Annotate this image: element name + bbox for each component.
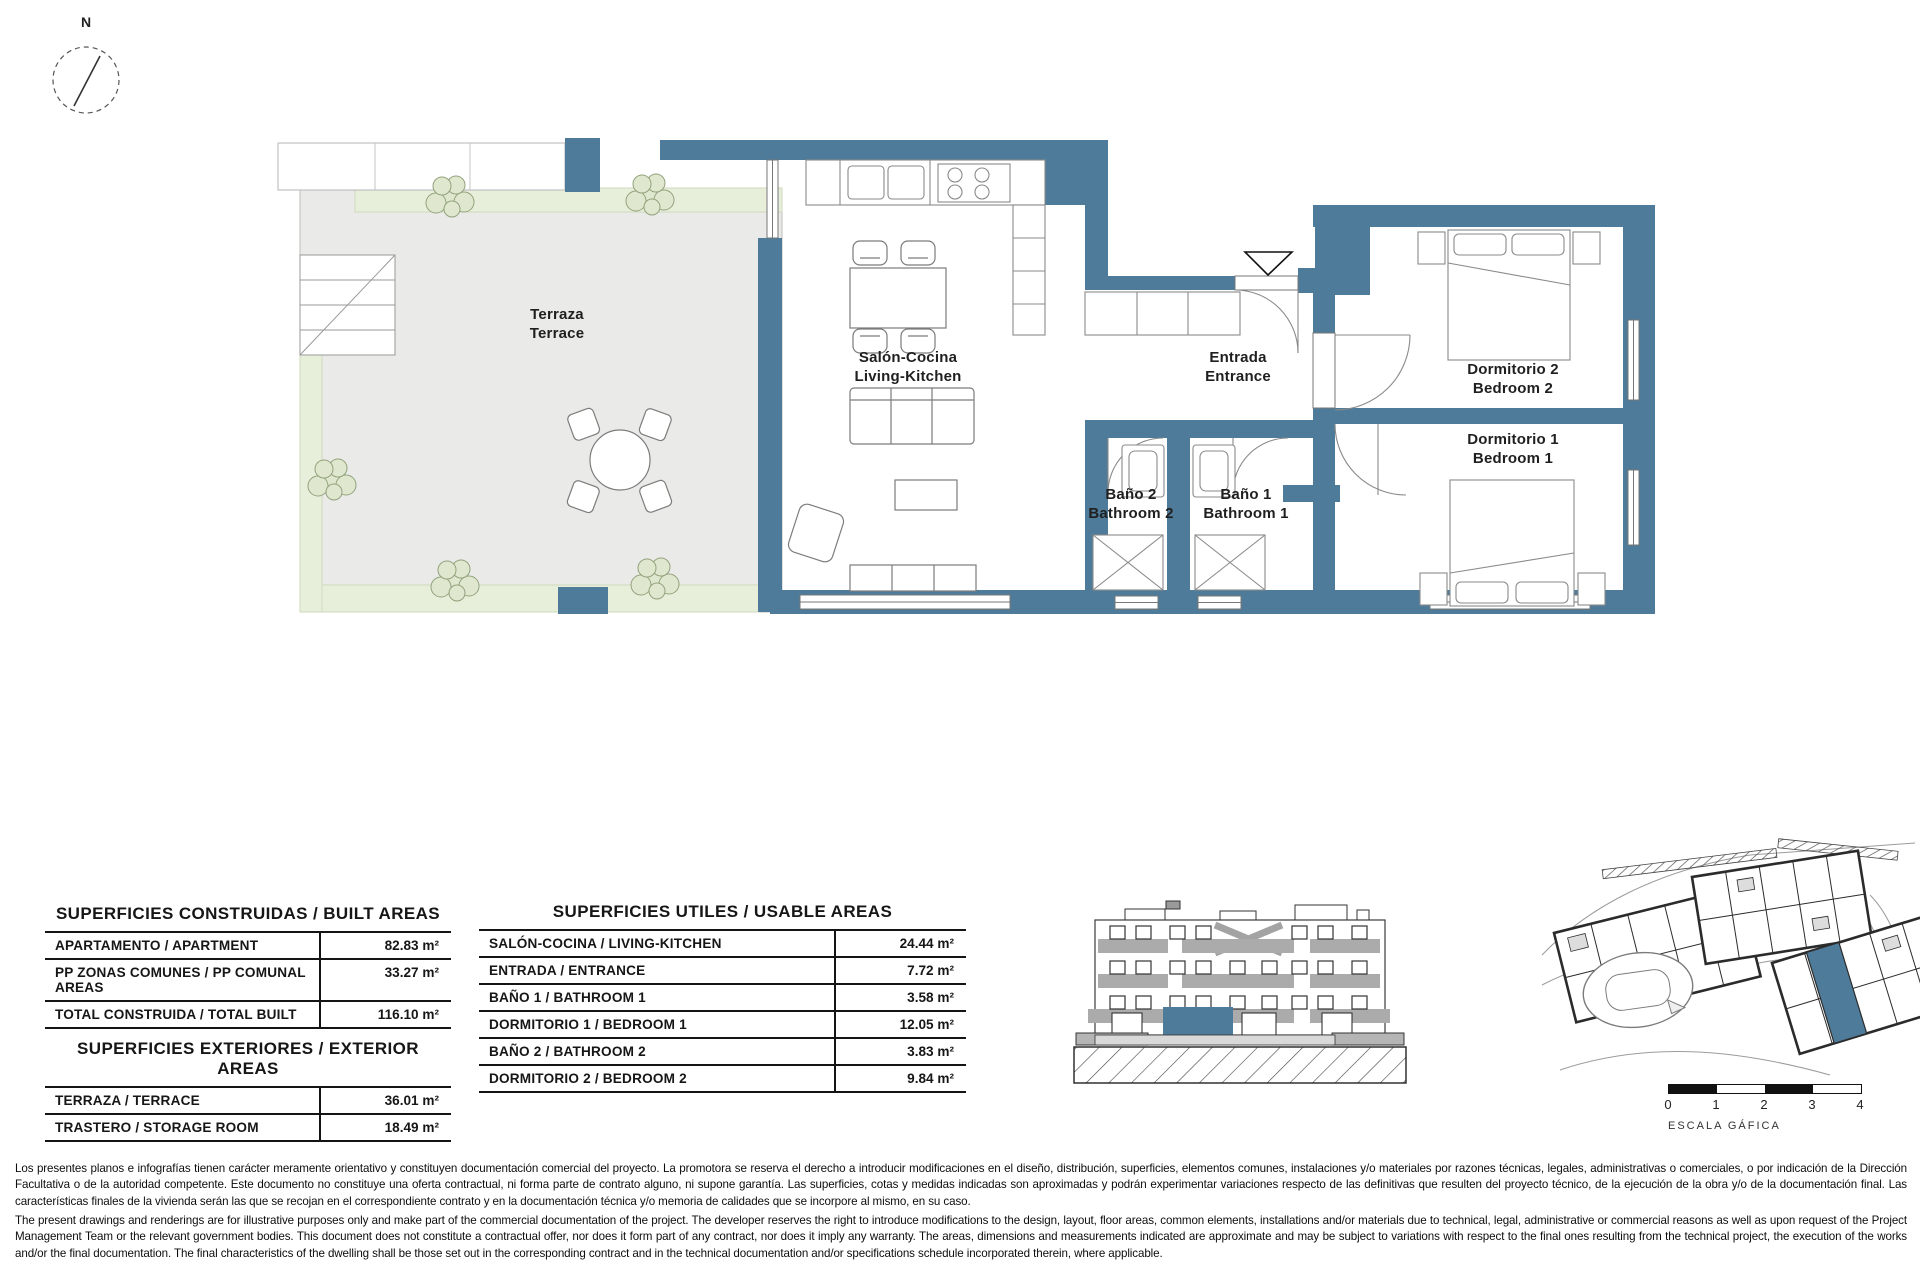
living-furniture [786, 241, 976, 591]
dining-chair [901, 241, 935, 265]
bed1 [1420, 480, 1605, 606]
usable-areas-title: SUPERFICIES UTILES / USABLE AREAS [479, 899, 966, 929]
scale-bar-segments [1668, 1084, 1862, 1094]
terrace-stairs [300, 255, 395, 355]
table-row: TRASTERO / STORAGE ROOM 18.49 m² [45, 1113, 451, 1140]
table-row: ENTRADA / ENTRANCE 7.72 m² [479, 956, 966, 983]
room-label-entrance: Entrada Entrance [1205, 349, 1271, 387]
table-row: PP ZONAS COMUNES / PP COMUNAL AREAS 33.2… [45, 958, 451, 1000]
exterior-areas-table: SUPERFICIES EXTERIORES / EXTERIOR AREAS … [45, 1036, 451, 1142]
scale-bar: 0 1 2 3 4 ESCALA GÁFICA [1668, 1084, 1908, 1144]
scale-tick: 4 [1856, 1097, 1863, 1112]
usable-areas-table: SUPERFICIES UTILES / USABLE AREAS SALÓN-… [479, 899, 966, 1093]
scale-tick: 1 [1712, 1097, 1719, 1112]
north-label: N [81, 14, 91, 30]
room-label-bathroom2: Baño 2 Bathroom 2 [1088, 486, 1173, 524]
room-label-terrace: Terraza Terrace [530, 306, 585, 344]
scale-tick: 0 [1664, 1097, 1671, 1112]
stove-icon [938, 164, 1010, 202]
coffee-table [895, 480, 957, 510]
scale-tick: 3 [1808, 1097, 1815, 1112]
dining-table [850, 268, 946, 328]
room-label-bedroom1: Dormitorio 1 Bedroom 1 [1467, 431, 1559, 469]
floor-plan-drawing [270, 135, 1665, 620]
north-compass-icon: N [40, 14, 132, 122]
scale-tick: 2 [1760, 1097, 1767, 1112]
table-row: TERRAZA / TERRACE 36.01 m² [45, 1086, 451, 1113]
room-label-bathroom1: Baño 1 Bathroom 1 [1203, 486, 1288, 524]
disclaimer-spanish: Los presentes planos e infografías tiene… [15, 1161, 1907, 1210]
scale-bar-caption: ESCALA GÁFICA [1668, 1120, 1781, 1132]
room-label-living-kitchen: Salón-Cocina Living-Kitchen [855, 349, 962, 387]
plan-sheet: N [0, 0, 1920, 1268]
table-row: DORMITORIO 2 / BEDROOM 2 9.84 m² [479, 1064, 966, 1091]
table-row: BAÑO 2 / BATHROOM 2 3.83 m² [479, 1037, 966, 1064]
tv-bench [850, 565, 976, 591]
ground-hatch [1074, 1047, 1406, 1083]
table-row: BAÑO 1 / BATHROOM 1 3.58 m² [479, 983, 966, 1010]
dining-chair [853, 241, 887, 265]
table-row: SALÓN-COCINA / LIVING-KITCHEN 24.44 m² [479, 929, 966, 956]
entrance-arrow-icon [1245, 252, 1292, 275]
sofa [850, 388, 974, 444]
bath1-door [1233, 438, 1288, 493]
site-plan-drawing [1540, 835, 1920, 1090]
tree-icon [626, 174, 674, 215]
bath1-shower [1195, 535, 1265, 590]
exterior-areas-title: SUPERFICIES EXTERIORES / EXTERIOR AREAS [45, 1036, 451, 1086]
bath2-shower [1093, 535, 1163, 590]
table-row: APARTAMENTO / APARTMENT 82.83 m² [45, 931, 451, 958]
bedroom2-door [1335, 335, 1410, 410]
built-areas-table: SUPERFICIES CONSTRUIDAS / BUILT AREAS AP… [45, 901, 451, 1029]
compass-icon [40, 14, 132, 122]
terrace-area [278, 143, 782, 612]
armchair [786, 502, 845, 564]
table-row: TOTAL CONSTRUIDA / TOTAL BUILT 116.10 m² [45, 1000, 451, 1027]
bedroom1-door [1335, 424, 1406, 495]
bed2 [1418, 230, 1600, 360]
disclaimer-english: The present drawings and renderings are … [15, 1213, 1907, 1262]
entrance-closets [1085, 292, 1240, 335]
table-row: DORMITORIO 1 / BEDROOM 1 12.05 m² [479, 1010, 966, 1037]
entrance-door [1235, 290, 1298, 353]
built-areas-title: SUPERFICIES CONSTRUIDAS / BUILT AREAS [45, 901, 451, 931]
room-label-bedroom2: Dormitorio 2 Bedroom 2 [1467, 361, 1559, 399]
building-elevation-drawing [1070, 895, 1410, 1090]
